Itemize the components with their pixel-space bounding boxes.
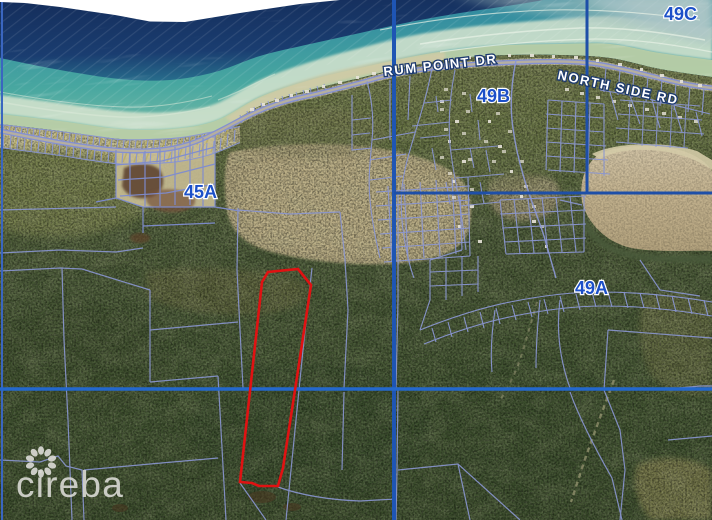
svg-text:49B: 49B: [477, 86, 510, 106]
svg-text:49C: 49C: [664, 4, 697, 24]
svg-text:cireba: cireba: [16, 464, 124, 505]
svg-text:49A: 49A: [575, 278, 608, 298]
svg-text:45A: 45A: [184, 182, 217, 202]
